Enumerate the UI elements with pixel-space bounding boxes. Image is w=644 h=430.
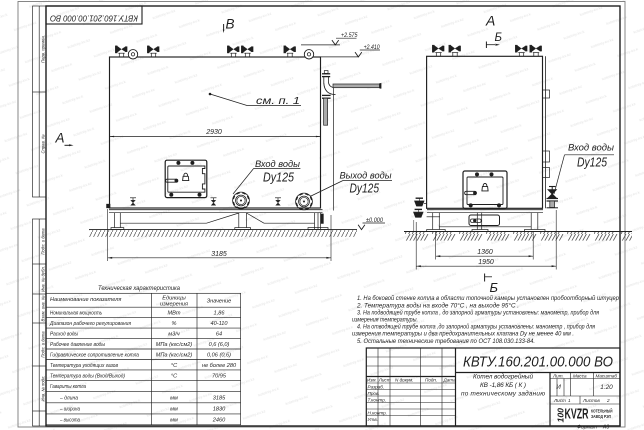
svg-text:5. Остальные технические треб: 5. Остальные технические требования по О…	[357, 339, 535, 345]
svg-text:1360: 1360	[477, 249, 493, 256]
svg-text:мм: мм	[170, 407, 178, 413]
svg-text:Утв.: Утв.	[368, 417, 378, 422]
svg-text:Инв. № дубл.: Инв. № дубл.	[40, 266, 45, 292]
svg-text:КВТУ.160.201.00.000 ВО: КВТУ.160.201.00.000 ВО	[49, 14, 138, 23]
svg-text:Справ. №: Справ. №	[40, 134, 45, 153]
svg-text:°С: °С	[171, 363, 178, 369]
svg-text:Температура уходящих газов: Температура уходящих газов	[50, 363, 118, 369]
svg-text:не более 280: не более 280	[202, 363, 237, 369]
svg-text:Рабочее давление воды: Рабочее давление воды	[50, 342, 105, 348]
svg-text:Лист: Лист	[553, 398, 566, 403]
svg-text:KVZR: KVZR	[565, 406, 589, 423]
svg-text:мм: мм	[170, 418, 178, 424]
svg-text:Т.контр.: Т.контр.	[368, 398, 387, 403]
svg-text:1,86: 1,86	[214, 311, 226, 317]
svg-text:1830: 1830	[213, 407, 226, 413]
svg-text:Техническая характеристика: Техническая характеристика	[98, 285, 180, 292]
svg-text:4. На отводящей трубе котла ,: 4. На отводящей трубе котла ,до запорной…	[357, 324, 596, 331]
svg-text:N докум.: N докум.	[395, 378, 414, 383]
svg-text:– ширина: – ширина	[59, 407, 80, 413]
svg-text:Лит.: Лит.	[552, 374, 564, 379]
svg-text:Диапазон рабочего регулировани: Диапазон рабочего регулирования	[49, 321, 131, 327]
svg-text:измерения: измерения	[160, 302, 188, 308]
svg-text:Н.контр.: Н.контр.	[368, 411, 387, 416]
svg-text:0,06 (0,6): 0,06 (0,6)	[207, 352, 231, 358]
svg-text:Перв. примен.: Перв. примен.	[40, 35, 45, 63]
svg-text:Пров.: Пров.	[368, 391, 380, 396]
svg-text:Взам. инв. №: Взам. инв. №	[40, 295, 45, 321]
svg-text:м3/ч: м3/ч	[168, 332, 179, 338]
svg-text:1: 1	[568, 398, 571, 403]
svg-text:Значение: Значение	[207, 299, 232, 305]
svg-text:КВТУ.160.201.00.000 ВО: КВТУ.160.201.00.000 ВО	[463, 355, 613, 371]
svg-text:Разраб.: Разраб.	[368, 385, 385, 390]
svg-text:Масштаб: Масштаб	[596, 374, 618, 379]
svg-text:2460: 2460	[212, 418, 226, 424]
svg-text:Изм.: Изм.	[367, 378, 377, 383]
svg-text:Котел водогрейный: Котел водогрейный	[473, 373, 533, 381]
svg-text:2: 2	[606, 398, 610, 403]
svg-text:Расход воды: Расход воды	[50, 332, 78, 338]
svg-text:Номинальная мощность: Номинальная мощность	[50, 311, 102, 317]
svg-text:измерения температуры и два пр: измерения температуры и два предохраните…	[352, 332, 574, 338]
svg-text:0,6 (6,0): 0,6 (6,0)	[209, 342, 230, 348]
svg-text:Вход воды: Вход воды	[568, 142, 614, 153]
svg-text:В: В	[226, 17, 235, 32]
svg-text:Гидравлическое сопротивление к: Гидравлическое сопротивление котла	[50, 352, 139, 358]
svg-text:А3: А3	[602, 424, 609, 430]
svg-text:– высота: – высота	[59, 418, 80, 424]
svg-text:64: 64	[216, 332, 222, 338]
svg-text:А: А	[485, 13, 495, 29]
svg-text:Формат: Формат	[577, 424, 597, 430]
svg-text:ЗАВОД РЭП: ЗАВОД РЭП	[591, 414, 611, 419]
svg-text:Dy125: Dy125	[263, 171, 294, 185]
svg-text:2. Температура воды на входе: 2. Температура воды на входе 70°С , на в…	[356, 303, 519, 309]
svg-text:Гавариты котла: Гавариты котла	[50, 384, 86, 390]
svg-text:Инв. № подл.: Инв. № подл.	[40, 376, 45, 402]
svg-text:МВт: МВт	[167, 311, 180, 317]
svg-text:70/95: 70/95	[212, 373, 227, 379]
svg-text:°С: °С	[171, 373, 178, 379]
svg-text:И: И	[556, 384, 561, 391]
svg-text:1950: 1950	[478, 259, 494, 266]
svg-text:Температура воды (Вход/Выход): Температура воды (Вход/Выход)	[50, 373, 125, 379]
svg-text:40-110: 40-110	[210, 321, 228, 327]
svg-text:МПа (кгс/см2): МПа (кгс/см2)	[156, 352, 193, 358]
svg-text:Наименование показателя: Наименование показателя	[50, 297, 121, 303]
svg-text:Подп. и дата: Подп. и дата	[40, 331, 45, 358]
svg-text:МПа (кгс/см2): МПа (кгс/см2)	[156, 342, 193, 348]
svg-text:Б: Б	[495, 32, 503, 44]
svg-text:Выход воды: Выход воды	[340, 171, 392, 182]
svg-text:Б: Б	[490, 280, 499, 295]
svg-text:+2.410: +2.410	[364, 45, 381, 51]
svg-text:Лист: Лист	[378, 378, 391, 383]
svg-text:±0.000: ±0.000	[366, 218, 384, 224]
svg-text:3185: 3185	[211, 251, 227, 258]
svg-text:А: А	[55, 131, 65, 146]
svg-text:1:20: 1:20	[600, 384, 613, 391]
svg-text:1. На боковой стенке котла в: 1. На боковой стенке котла в области топ…	[357, 295, 620, 302]
svg-text:измерения температуры.: измерения температуры.	[352, 318, 418, 324]
svg-text:Дата: Дата	[443, 378, 457, 383]
svg-text:Dy125: Dy125	[350, 182, 380, 196]
svg-text:Dy125: Dy125	[577, 155, 607, 169]
svg-text:– длина: – длина	[59, 395, 78, 401]
svg-text:3185: 3185	[213, 395, 226, 401]
svg-text:3. На подводящей трубе котла: 3. На подводящей трубе котла , до запорн…	[357, 309, 600, 316]
svg-text:Подп.: Подп.	[425, 378, 437, 383]
svg-text:КОТЕЛЬНЫЙ: КОТЕЛЬНЫЙ	[591, 408, 613, 413]
svg-text:по техническому заданию: по техническому заданию	[461, 390, 545, 398]
svg-text:КВ -1,86 КБ ( К ): КВ -1,86 КБ ( К )	[480, 382, 526, 389]
svg-text:Масса: Масса	[573, 374, 587, 379]
svg-text:+2.575: +2.575	[341, 33, 358, 39]
svg-text:Подп. и дата: Подп. и дата	[40, 228, 45, 255]
svg-text:%: %	[172, 321, 177, 327]
svg-text:мм: мм	[170, 395, 178, 401]
svg-text:2930: 2930	[205, 129, 222, 136]
svg-text:см. п. 1: см. п. 1	[256, 96, 300, 107]
svg-text:Листов: Листов	[582, 398, 600, 403]
